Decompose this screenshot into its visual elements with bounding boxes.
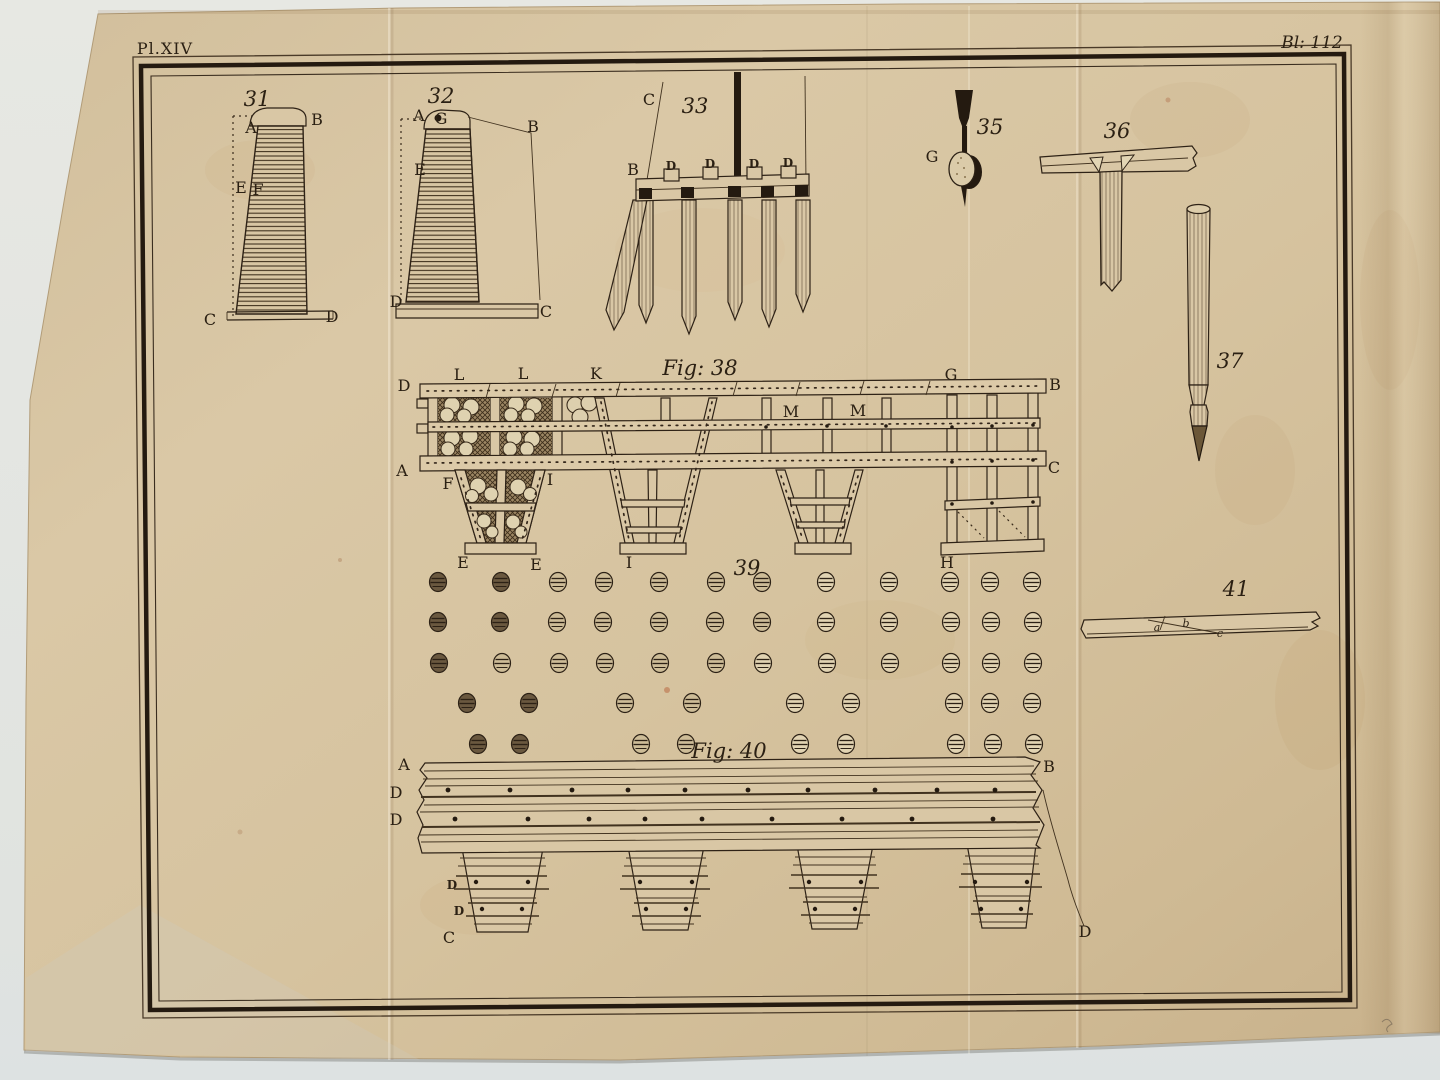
pile-head-circle: [494, 654, 511, 673]
figure-label: B: [1049, 375, 1061, 394]
figure-label: M: [850, 401, 866, 420]
pile-head-circle: [684, 694, 701, 713]
figure-label: D: [454, 904, 464, 918]
figure-label: D: [326, 307, 339, 326]
pile-head-circle: [493, 573, 510, 592]
figure-label: F: [252, 180, 263, 199]
bolt-dot: [526, 817, 531, 822]
pile-head-circle: [492, 613, 509, 632]
figure-label: E: [530, 555, 542, 574]
pile-head-circle: [652, 654, 669, 673]
pile-head-circle: [982, 694, 999, 713]
pile-head-circle: [651, 613, 668, 632]
figure-label: 33: [682, 94, 709, 118]
figure-label: Fig: 40: [690, 739, 766, 763]
pile-head-circle: [792, 735, 809, 754]
figure-label: A: [395, 461, 408, 480]
figure-label: E: [414, 160, 426, 179]
figure-label: A: [412, 106, 425, 125]
figure-label: A: [244, 118, 257, 137]
pile-head-circle: [470, 735, 487, 754]
pile-head-circle: [982, 573, 999, 592]
pile-head-circle: [818, 573, 835, 592]
bolt-dot: [993, 788, 998, 793]
bolt-dot: [587, 817, 592, 822]
pile-head-circle: [708, 654, 725, 673]
bolt-dot: [806, 788, 811, 793]
figure-label: B: [1043, 757, 1055, 776]
bolt-dot: [746, 788, 751, 793]
pile-head-circle: [597, 654, 614, 673]
page-number: Bl: 112: [1280, 33, 1343, 53]
pile-head-circle: [882, 654, 899, 673]
bolt-dot: [853, 907, 857, 911]
bolt-dot: [770, 817, 775, 822]
engraved-plate-scan: Pl.XIV Bl: 112: [0, 0, 1440, 1080]
pile-head-circle: [512, 735, 529, 754]
figure-label: G: [435, 109, 448, 128]
pile-head-circle: [595, 613, 612, 632]
pile-head-circle: [948, 735, 965, 754]
figure-label: a: [1154, 621, 1161, 634]
pile-head-circle: [651, 573, 668, 592]
bolt-dot: [973, 880, 977, 884]
bolt-dot: [453, 817, 458, 822]
figure-label: I: [626, 553, 632, 572]
figure-label: C: [204, 310, 216, 329]
pile-head-circle: [787, 694, 804, 713]
figure-label: E: [457, 553, 469, 572]
bolt-dot: [807, 880, 811, 884]
figure-label: G: [926, 147, 939, 166]
figure-label: H: [940, 553, 954, 572]
figure-label: D: [666, 159, 676, 173]
figure-label: C: [643, 90, 655, 109]
bolt-dot: [446, 788, 451, 793]
figure-label: D: [783, 156, 793, 170]
figure-label: L: [454, 365, 465, 384]
figure-label: 41: [1222, 577, 1250, 601]
figure-label: B: [311, 110, 323, 129]
pile-head-circle: [551, 654, 568, 673]
figure-label: E: [235, 178, 247, 197]
bolt-dot: [840, 817, 845, 822]
figure-label: 32: [428, 84, 455, 108]
figure-label: K: [590, 364, 603, 383]
figure-label: C: [1048, 458, 1060, 477]
figure-label: G: [945, 365, 958, 384]
figure-label: b: [1182, 617, 1189, 630]
pile-head-circle: [754, 613, 771, 632]
figure-label: C: [540, 302, 552, 321]
pile-head-circle: [1024, 694, 1041, 713]
pile-head-circle: [943, 654, 960, 673]
bolt-dot: [508, 788, 513, 793]
pile-head-circle: [1024, 573, 1041, 592]
pile-head-circle: [707, 613, 724, 632]
figure-label: B: [527, 117, 539, 136]
figure-label: D: [749, 157, 759, 171]
pile-head-circle: [881, 573, 898, 592]
pile-head-circle: [708, 573, 725, 592]
figure-label: D: [390, 810, 403, 829]
figure-label: I: [547, 470, 553, 489]
figure-label: Fig: 38: [661, 356, 737, 380]
figure-label: c: [1217, 627, 1223, 640]
bolt-dot: [859, 880, 863, 884]
plate-number: Pl.XIV: [137, 39, 193, 58]
figure-label: C: [443, 928, 455, 947]
figure-label: D: [390, 292, 403, 311]
pile-head-circle: [430, 573, 447, 592]
pile-head-circle: [459, 694, 476, 713]
figure-label: 35: [977, 115, 1004, 139]
figure-label: D: [398, 376, 411, 395]
pile-head-circle: [549, 613, 566, 632]
bolt-dot: [1019, 907, 1023, 911]
pile-head-circle: [431, 654, 448, 673]
bolt-dot: [643, 817, 648, 822]
pile-head-circle: [942, 573, 959, 592]
pile-head-circle: [983, 613, 1000, 632]
figure-label: 37: [1217, 349, 1244, 373]
bolt-dot: [873, 788, 878, 793]
pile-head-circle: [1026, 735, 1043, 754]
bolt-dot: [638, 880, 642, 884]
pile-head-circle: [985, 735, 1002, 754]
figure-label: B: [627, 160, 639, 179]
bolt-dot: [526, 880, 530, 884]
pile-head-circle: [617, 694, 634, 713]
pile-head-circle: [633, 735, 650, 754]
bolt-dot: [570, 788, 575, 793]
pile-head-circle: [1025, 613, 1042, 632]
pile-head-circle: [755, 654, 772, 673]
bolt-dot: [626, 788, 631, 793]
pile-head-circle: [430, 613, 447, 632]
figure-label: D: [447, 878, 457, 892]
figure-label: D: [390, 783, 403, 802]
figure-label: 36: [1104, 119, 1131, 143]
pile-head-circle: [521, 694, 538, 713]
bolt-dot: [684, 907, 688, 911]
bolt-dot: [690, 880, 694, 884]
pile-head-circle: [550, 573, 567, 592]
pile-head-circle: [1025, 654, 1042, 673]
bolt-dot: [474, 880, 478, 884]
bolt-dot: [991, 817, 996, 822]
figure-label: 39: [734, 556, 761, 580]
pile-head-circle: [946, 694, 963, 713]
pile-head-circle: [818, 613, 835, 632]
bolt-dot: [813, 907, 817, 911]
bolt-dot: [644, 907, 648, 911]
pile-head-circle: [596, 573, 613, 592]
figure-label: D: [1079, 922, 1092, 941]
bolt-dot: [480, 907, 484, 911]
pile-head-circle: [843, 694, 860, 713]
pile-head-circle: [881, 613, 898, 632]
bolt-dot: [520, 907, 524, 911]
figure-label: A: [397, 755, 410, 774]
figure-label: F: [442, 474, 453, 493]
figure-label: M: [783, 402, 799, 421]
figure-label: 31: [244, 87, 271, 111]
pile-head-circle: [838, 735, 855, 754]
bolt-dot: [910, 817, 915, 822]
bolt-dot: [1025, 880, 1029, 884]
figure-label: L: [518, 364, 529, 383]
bolt-dot: [935, 788, 940, 793]
bolt-dot: [700, 817, 705, 822]
bolt-dot: [979, 907, 983, 911]
figure-label: D: [705, 157, 715, 171]
bolt-dot: [683, 788, 688, 793]
pile-head-circle: [819, 654, 836, 673]
pile-head-circle: [943, 613, 960, 632]
pile-head-circle: [983, 654, 1000, 673]
